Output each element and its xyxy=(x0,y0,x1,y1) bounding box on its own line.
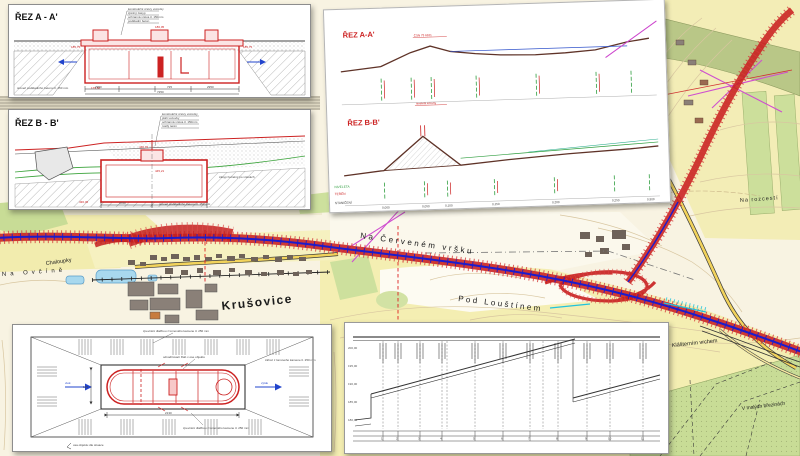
green-ticks-a xyxy=(381,71,632,101)
elev-bottom-b: 436,45 xyxy=(79,200,89,204)
panel-plan: vtok výtok 2130 125 zpevnění dlažbou z l… xyxy=(12,324,332,452)
terrain-a xyxy=(340,38,650,72)
plan-dim-len: 2130 xyxy=(165,411,172,415)
dim-1: 2950 xyxy=(95,85,102,89)
svg-text:9: 9 xyxy=(585,437,587,441)
plan-note-bottom: zpevnění dlažbou z lomového kamene tl. 2… xyxy=(183,426,250,430)
brewery-buildings xyxy=(128,282,218,323)
svg-text:185,00: 185,00 xyxy=(348,400,358,404)
elevation-labels: 200,00 195,00 190,00 185,00 180,00 xyxy=(348,346,358,422)
svg-text:0,050: 0,050 xyxy=(422,204,430,208)
note-b3: rostlý terén xyxy=(162,124,177,128)
panel-profiles: ŘEZ A-A' ČSN 73 6101 xyxy=(323,0,671,213)
svg-text:190,00: 190,00 xyxy=(348,382,358,386)
svg-text:0,100: 0,100 xyxy=(445,203,453,207)
profiles-drawing: ŘEZ A-A' ČSN 73 6101 xyxy=(324,0,670,212)
elev-left: 185,75 xyxy=(71,45,81,49)
elev-top-b: 446,72 xyxy=(139,145,149,149)
svg-text:0,150: 0,150 xyxy=(492,202,500,206)
dim-3: 2950 xyxy=(207,85,214,89)
north-tick-icon xyxy=(67,443,71,449)
svg-text:11: 11 xyxy=(641,437,644,441)
note-bottom: úroveň podkladního betonu tl. 150 mm xyxy=(17,86,69,90)
section-b-title: ŘEZ B - B' xyxy=(15,117,59,128)
svg-text:0,300: 0,300 xyxy=(647,197,655,201)
note-3: podkladní beton xyxy=(128,19,150,23)
bottom-table: 1 2 3 4 5 6 7 8 9 10 11 xyxy=(353,431,660,441)
tunnel-structure xyxy=(81,30,243,83)
plan-note-right: zához z lomového kamene tl. 250 mm xyxy=(265,358,316,362)
note-box: zásyp hutněný po vrstvách xyxy=(219,175,255,179)
plan-note-corner: osa objektu dle situace xyxy=(73,443,104,447)
svg-text:195,00: 195,00 xyxy=(348,364,358,368)
wing-wall xyxy=(35,147,73,180)
row-label-teren: TERÉN xyxy=(335,191,347,196)
dim-b1: 4700 xyxy=(119,201,126,205)
svg-text:180,00: 180,00 xyxy=(348,418,358,422)
green-grade-b xyxy=(460,142,658,158)
table-station-values: 1 2 3 4 5 6 7 8 9 10 11 xyxy=(381,437,644,441)
plan-note-mid: odvodňovací žlab v ose objektu xyxy=(163,355,205,359)
red-ticks-a xyxy=(384,74,599,99)
plan-dim-w: 125 xyxy=(83,385,88,389)
elev-mid-b: 445,21 xyxy=(155,169,165,173)
profile-chart-drawing: 200,00 195,00 190,00 185,00 180,00 xyxy=(345,323,668,453)
green-ticks-b xyxy=(384,174,649,198)
elev-right: 185,75 xyxy=(243,45,253,49)
svg-text:7: 7 xyxy=(528,437,530,441)
red-crest-b xyxy=(421,125,425,136)
elev-top: 186,05 xyxy=(155,25,165,29)
svg-text:4: 4 xyxy=(440,437,442,441)
scrub-band xyxy=(0,96,320,110)
crest-note-b: niveleta koruny xyxy=(416,101,437,106)
row-label-niveleta: NIVELETA xyxy=(334,185,350,190)
svg-text:200,00: 200,00 xyxy=(348,346,358,350)
plan-drawing: vtok výtok 2130 125 zpevnění dlažbou z l… xyxy=(13,325,331,451)
svg-text:10: 10 xyxy=(608,437,612,441)
svg-text:0,250: 0,250 xyxy=(612,198,620,202)
plan-notes: zpevnění dlažbou z lomového kamene tl. 2… xyxy=(67,329,316,449)
plan-note-top: zpevnění dlažbou z lomového kamene tl. 2… xyxy=(143,329,210,333)
outflow-label: výtok xyxy=(261,381,269,385)
section-a-drawing: ŘEZ A - A' xyxy=(9,5,310,97)
svg-text:2: 2 xyxy=(396,437,398,441)
dim-total: 7250 xyxy=(157,90,164,94)
tube-plan xyxy=(107,363,239,411)
profile-b: niveleta koruny xyxy=(342,94,660,200)
embankment xyxy=(383,135,461,170)
svg-text:8: 8 xyxy=(556,437,558,441)
inflow-label: vtok xyxy=(65,381,71,385)
svg-text:1: 1 xyxy=(381,437,383,441)
label-town: Krušovice xyxy=(221,292,294,313)
top-bar xyxy=(353,337,660,341)
drawing-canvas: Krušovice Na Červeném vršku Pod Louštíne… xyxy=(0,0,800,456)
hatch-right xyxy=(239,51,305,95)
panel-profile-chart: 200,00 195,00 190,00 185,00 180,00 xyxy=(344,322,669,454)
red-ticks-b xyxy=(427,179,557,195)
panel-section-a: ŘEZ A - A' xyxy=(8,4,311,98)
section-b-drawing: ŘEZ B - B' xyxy=(9,110,310,209)
profile-a-title: ŘEZ A-A' xyxy=(343,30,375,40)
profile-a: ČSN 73 6101 xyxy=(340,21,659,105)
svg-text:3: 3 xyxy=(418,437,420,441)
svg-text:0,200: 0,200 xyxy=(552,200,560,204)
magenta-gradient xyxy=(604,21,657,58)
crest-note: ČSN 73 6101 xyxy=(414,32,432,38)
section-a-title: ŘEZ A - A' xyxy=(15,11,58,22)
row-label-stanice: STANIČENÍ xyxy=(335,200,352,206)
svg-text:6: 6 xyxy=(501,437,503,441)
dim-2: 725 xyxy=(167,85,172,89)
panel-section-b: ŘEZ B - B' xyxy=(8,109,311,210)
note-bottom-b: úroveň podkladního betonu tl. 150 mm xyxy=(159,202,211,206)
svg-text:5: 5 xyxy=(473,437,475,441)
svg-text:0,000: 0,000 xyxy=(382,205,390,209)
profile-b-title: ŘEZ B-B' xyxy=(347,118,380,128)
